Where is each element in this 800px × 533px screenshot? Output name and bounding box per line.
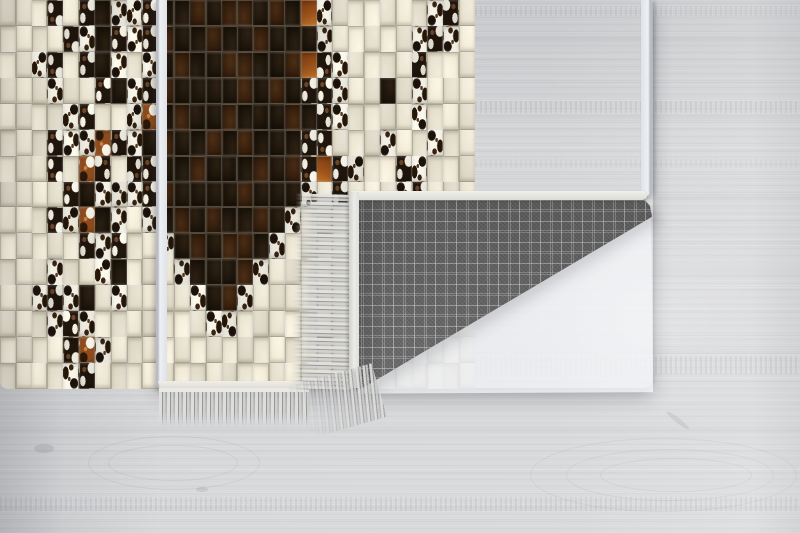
mosaic-tile (206, 156, 222, 182)
mosaic-tile (380, 156, 396, 182)
mosaic-tile (222, 26, 238, 52)
mosaic-tile (317, 78, 333, 104)
mosaic-tile (111, 363, 127, 389)
mosaic-tile (16, 104, 32, 130)
mosaic-tile (285, 0, 301, 26)
mosaic-tile (111, 52, 127, 78)
mosaic-tile (412, 156, 428, 182)
mosaic-tile (317, 130, 333, 156)
mosaic-tile (47, 26, 63, 52)
mosaic-tile (0, 0, 16, 26)
mosaic-tile (95, 104, 111, 130)
mosaic-tile (32, 259, 48, 285)
mosaic-tile (111, 78, 127, 104)
mosaic-tile (174, 130, 190, 156)
mosaic-tile (332, 104, 348, 130)
mosaic-tile (47, 285, 63, 311)
mosaic-tile (237, 337, 253, 363)
mosaic-tile (127, 52, 143, 78)
mosaic-tile (190, 0, 206, 26)
mosaic-tile (364, 0, 380, 26)
mosaic-tile (364, 78, 380, 104)
mosaic-tile (95, 207, 111, 233)
mosaic-tile (16, 52, 32, 78)
mosaic-tile (237, 26, 253, 52)
mosaic-tile (237, 78, 253, 104)
mosaic-tile (301, 52, 317, 78)
mosaic-tile (237, 104, 253, 130)
mosaic-tile (127, 363, 143, 389)
mosaic-tile (63, 52, 79, 78)
mosaic-tile (174, 0, 190, 26)
mosaic-tile (253, 311, 269, 337)
mosaic-tile (0, 26, 16, 52)
mosaic-tile (459, 156, 475, 182)
mosaic-tile (206, 259, 222, 285)
mosaic-tile (380, 130, 396, 156)
mosaic-tile (459, 52, 475, 78)
mosaic-tile (348, 130, 364, 156)
mosaic-tile (206, 52, 222, 78)
mosaic-tile (222, 182, 238, 208)
mosaic-tile (364, 52, 380, 78)
mosaic-tile (63, 337, 79, 363)
mosaic-tile (396, 0, 412, 26)
mosaic-tile (253, 259, 269, 285)
mosaic-tile (95, 78, 111, 104)
mosaic-tile (269, 233, 285, 259)
mosaic-tile (174, 285, 190, 311)
mosaic-tile (237, 233, 253, 259)
mosaic-tile (16, 311, 32, 337)
mosaic-tile (285, 26, 301, 52)
mosaic-tile (301, 130, 317, 156)
folded-corner-fringe (288, 193, 355, 391)
mosaic-tile (79, 104, 95, 130)
mosaic-tile (95, 52, 111, 78)
mosaic-tile (16, 207, 32, 233)
mosaic-tile (380, 0, 396, 26)
mosaic-tile (127, 104, 143, 130)
mosaic-tile (16, 130, 32, 156)
mosaic-tile (222, 259, 238, 285)
mosaic-tile (16, 182, 32, 208)
mosaic-tile (301, 104, 317, 130)
mosaic-tile (95, 233, 111, 259)
mosaic-tile (412, 0, 428, 26)
mosaic-tile (253, 337, 269, 363)
mosaic-tile (32, 0, 48, 26)
product-photo (0, 0, 800, 533)
mosaic-tile (222, 285, 238, 311)
mosaic-tile (111, 156, 127, 182)
mosaic-tile (190, 285, 206, 311)
mosaic-tile (127, 0, 143, 26)
mosaic-tile (222, 311, 238, 337)
mosaic-tile (32, 104, 48, 130)
mosaic-tile (111, 0, 127, 26)
mosaic-tile (63, 182, 79, 208)
mosaic-tile (16, 233, 32, 259)
mosaic-tile (269, 78, 285, 104)
mosaic-tile (79, 78, 95, 104)
mosaic-tile (380, 52, 396, 78)
mosaic-tile (0, 285, 16, 311)
mosaic-tile (127, 259, 143, 285)
mosaic-tile (348, 26, 364, 52)
mosaic-tile (396, 104, 412, 130)
mosaic-tile (79, 337, 95, 363)
mosaic-tile (237, 156, 253, 182)
mosaic-tile (412, 26, 428, 52)
mosaic-tile (412, 78, 428, 104)
mosaic-tile (79, 156, 95, 182)
mosaic-tile (0, 78, 16, 104)
mosaic-tile (190, 52, 206, 78)
mosaic-tile (95, 363, 111, 389)
mosaic-tile (412, 52, 428, 78)
mosaic-tile (317, 104, 333, 130)
mosaic-tile (16, 285, 32, 311)
mosaic-tile (79, 363, 95, 389)
mosaic-tile (63, 130, 79, 156)
mosaic-tile (317, 0, 333, 26)
mosaic-tile (16, 259, 32, 285)
mosaic-tile (253, 130, 269, 156)
mosaic-tile (95, 130, 111, 156)
mosaic-tile (0, 182, 16, 208)
mosaic-tile (317, 156, 333, 182)
mosaic-tile (47, 182, 63, 208)
mosaic-tile (63, 259, 79, 285)
mosaic-tile (47, 156, 63, 182)
mosaic-tile (348, 52, 364, 78)
mosaic-tile (127, 182, 143, 208)
mosaic-tile (190, 78, 206, 104)
mosaic-tile (47, 337, 63, 363)
mosaic-tile (206, 207, 222, 233)
mosaic-tile (237, 52, 253, 78)
mosaic-tile (95, 311, 111, 337)
mosaic-tile (301, 26, 317, 52)
mosaic-tile (206, 233, 222, 259)
mosaic-tile (206, 26, 222, 52)
mosaic-tile (174, 26, 190, 52)
mosaic-tile (253, 156, 269, 182)
mosaic-tile (237, 207, 253, 233)
mosaic-tile (63, 363, 79, 389)
mosaic-tile (348, 156, 364, 182)
mosaic-tile (47, 52, 63, 78)
mosaic-tile (174, 207, 190, 233)
mosaic-tile (95, 0, 111, 26)
mosaic-tile (47, 233, 63, 259)
mosaic-tile (396, 156, 412, 182)
mosaic-tile (412, 104, 428, 130)
mosaic-tile (301, 156, 317, 182)
mosaic-tile (237, 130, 253, 156)
mosaic-tile (459, 78, 475, 104)
mosaic-tile (32, 52, 48, 78)
mosaic-tile (0, 259, 16, 285)
mosaic-tile (317, 52, 333, 78)
mosaic-tile (32, 337, 48, 363)
mosaic-tile (47, 0, 63, 26)
mosaic-tile (63, 104, 79, 130)
mosaic-tile (32, 207, 48, 233)
rug-right-binding (641, 0, 652, 197)
mosaic-tile (16, 156, 32, 182)
mosaic-tile (47, 259, 63, 285)
mosaic-tile (364, 104, 380, 130)
mosaic-tile (269, 182, 285, 208)
mosaic-tile (32, 285, 48, 311)
mosaic-tile (127, 207, 143, 233)
mosaic-tile (269, 52, 285, 78)
rug-left-binding (156, 0, 167, 389)
mosaic-tile (111, 104, 127, 130)
mosaic-tile (79, 130, 95, 156)
mosaic-tile (32, 311, 48, 337)
mosaic-tile (332, 156, 348, 182)
mosaic-tile (253, 207, 269, 233)
mosaic-tile (0, 233, 16, 259)
mosaic-tile (396, 78, 412, 104)
mosaic-tile (253, 233, 269, 259)
mosaic-tile (79, 207, 95, 233)
mosaic-tile (269, 26, 285, 52)
mosaic-tile (285, 78, 301, 104)
mosaic-tile (190, 233, 206, 259)
mosaic-tile (63, 207, 79, 233)
mosaic-tile (206, 285, 222, 311)
mosaic-tile (111, 337, 127, 363)
mosaic-tile (364, 130, 380, 156)
mosaic-tile (0, 311, 16, 337)
mosaic-tile (127, 26, 143, 52)
mosaic-tile (285, 156, 301, 182)
mosaic-tile (190, 259, 206, 285)
mosaic-tile (127, 156, 143, 182)
mosaic-tile (222, 52, 238, 78)
mosaic-tile (427, 78, 443, 104)
mosaic-tile (206, 104, 222, 130)
mosaic-tile (63, 285, 79, 311)
mosaic-tile (63, 156, 79, 182)
mosaic-tile (206, 311, 222, 337)
mosaic-tile (63, 26, 79, 52)
mosaic-tile (269, 311, 285, 337)
mosaic-tile (95, 285, 111, 311)
mosaic-tile (79, 259, 95, 285)
mosaic-tile (253, 78, 269, 104)
mosaic-tile (174, 259, 190, 285)
mosaic-tile (174, 78, 190, 104)
mosaic-tile (348, 0, 364, 26)
mosaic-tile (317, 26, 333, 52)
mosaic-tile (206, 0, 222, 26)
mosaic-tile (0, 363, 16, 389)
mosaic-tile (427, 52, 443, 78)
mosaic-tile (111, 182, 127, 208)
mosaic-tile (459, 130, 475, 156)
mosaic-tile (222, 337, 238, 363)
mosaic-tile (0, 156, 16, 182)
mosaic-tile (237, 311, 253, 337)
mosaic-tile (443, 78, 459, 104)
mosaic-tile (32, 78, 48, 104)
mosaic-tile (32, 26, 48, 52)
mosaic-tile (222, 233, 238, 259)
mosaic-tile (222, 78, 238, 104)
mosaic-tile (174, 182, 190, 208)
mosaic-tile (348, 78, 364, 104)
mosaic-tile (285, 104, 301, 130)
mosaic-tile (206, 130, 222, 156)
mosaic-tile (222, 0, 238, 26)
mosaic-tile (16, 78, 32, 104)
mosaic-tile (190, 207, 206, 233)
mosaic-tile (0, 337, 16, 363)
mosaic-tile (332, 130, 348, 156)
mosaic-tile (269, 285, 285, 311)
mosaic-tile (95, 26, 111, 52)
mosaic-tile (364, 156, 380, 182)
mosaic-tile (396, 26, 412, 52)
mosaic-tile (237, 285, 253, 311)
mosaic-tile (206, 182, 222, 208)
mosaic-tile (190, 26, 206, 52)
mosaic-tile (253, 0, 269, 26)
folded-corner-top-binding (351, 191, 647, 200)
mosaic-tile (206, 78, 222, 104)
mosaic-tile (253, 182, 269, 208)
mosaic-tile (174, 233, 190, 259)
mosaic-tile (269, 337, 285, 363)
mosaic-tile (79, 285, 95, 311)
mosaic-tile (285, 52, 301, 78)
mosaic-tile (332, 26, 348, 52)
mosaic-tile (443, 52, 459, 78)
mosaic-tile (269, 259, 285, 285)
mosaic-tile (427, 104, 443, 130)
mosaic-tile (47, 78, 63, 104)
mosaic-tile (269, 207, 285, 233)
mosaic-tile (253, 104, 269, 130)
mosaic-tile (47, 130, 63, 156)
mosaic-tile (0, 207, 16, 233)
mosaic-tile (0, 130, 16, 156)
mosaic-tile (301, 0, 317, 26)
mosaic-tile (206, 337, 222, 363)
mosaic-tile (332, 0, 348, 26)
mosaic-tile (63, 78, 79, 104)
mosaic-tile (95, 337, 111, 363)
mosaic-tile (16, 0, 32, 26)
mosaic-tile (47, 207, 63, 233)
mosaic-tile (32, 182, 48, 208)
mosaic-tile (443, 130, 459, 156)
mosaic-tile (63, 0, 79, 26)
mosaic-tile (0, 52, 16, 78)
mosaic-tile (332, 78, 348, 104)
mosaic-tile (79, 0, 95, 26)
mosaic-tile (396, 130, 412, 156)
mosaic-tile (95, 182, 111, 208)
mosaic-tile (111, 259, 127, 285)
mosaic-tile (443, 26, 459, 52)
mosaic-tile (16, 363, 32, 389)
mosaic-tile (427, 26, 443, 52)
mosaic-tile (32, 130, 48, 156)
mosaic-tile (285, 130, 301, 156)
mosaic-tile (79, 52, 95, 78)
mosaic-tile (396, 52, 412, 78)
mosaic-tile (127, 233, 143, 259)
mosaic-tile (79, 233, 95, 259)
mosaic-tile (253, 52, 269, 78)
folded-corner-left-binding (349, 192, 359, 388)
mosaic-tile (111, 207, 127, 233)
mosaic-tile (427, 0, 443, 26)
mosaic-tile (79, 26, 95, 52)
mosaic-tile (443, 0, 459, 26)
mosaic-tile (443, 104, 459, 130)
mosaic-tile (111, 26, 127, 52)
mosaic-tile (222, 156, 238, 182)
mosaic-tile (127, 285, 143, 311)
mosaic-tile (127, 311, 143, 337)
mosaic-tile (127, 78, 143, 104)
mosaic-tile (222, 104, 238, 130)
mosaic-tile (174, 52, 190, 78)
mosaic-tile (269, 130, 285, 156)
mosaic-tile (174, 311, 190, 337)
mosaic-tile (79, 311, 95, 337)
mosaic-tile (16, 26, 32, 52)
mosaic-tile (459, 104, 475, 130)
mosaic-tile (111, 233, 127, 259)
mosaic-tile (237, 182, 253, 208)
mosaic-tile (190, 156, 206, 182)
mosaic-tile (253, 26, 269, 52)
mosaic-tile (111, 130, 127, 156)
mosaic-tile (380, 104, 396, 130)
mosaic-tile (190, 337, 206, 363)
mosaic-tile (95, 259, 111, 285)
mosaic-tile (32, 156, 48, 182)
mosaic-tile (443, 156, 459, 182)
mosaic-tile (301, 78, 317, 104)
rug-bottom-fringe (159, 388, 309, 428)
mosaic-tile (190, 311, 206, 337)
mosaic-tile (47, 363, 63, 389)
mosaic-tile (380, 78, 396, 104)
mosaic-tile (63, 233, 79, 259)
mosaic-tile (32, 233, 48, 259)
mosaic-tile (190, 130, 206, 156)
mosaic-tile (190, 182, 206, 208)
mosaic-tile (111, 311, 127, 337)
mosaic-tile (253, 285, 269, 311)
mosaic-tile (111, 285, 127, 311)
mosaic-tile (174, 156, 190, 182)
mosaic-tile (332, 52, 348, 78)
mosaic-tile (47, 311, 63, 337)
mosaic-tile (269, 104, 285, 130)
mosaic-tile (427, 156, 443, 182)
mosaic-tile (127, 337, 143, 363)
